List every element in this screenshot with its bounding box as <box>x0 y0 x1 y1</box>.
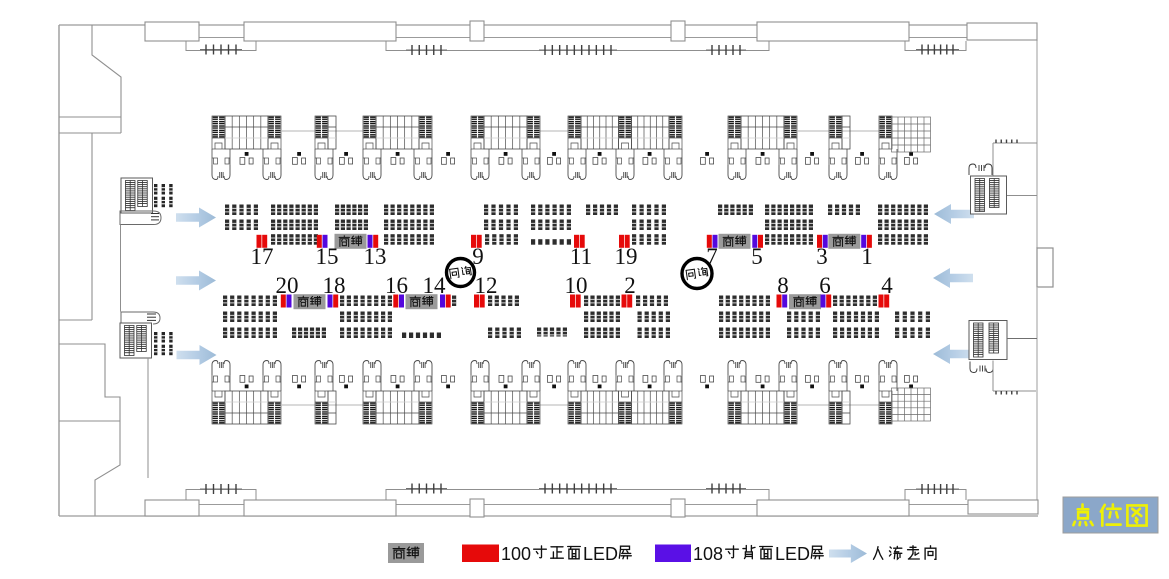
svg-text:14: 14 <box>423 273 447 298</box>
svg-text:3: 3 <box>816 244 828 269</box>
svg-text:17: 17 <box>251 244 274 269</box>
svg-text:6: 6 <box>819 273 831 298</box>
svg-text:16: 16 <box>385 273 408 298</box>
svg-text:15: 15 <box>316 244 339 269</box>
svg-text:12: 12 <box>475 273 498 298</box>
svg-text:10: 10 <box>565 273 588 298</box>
svg-text:20: 20 <box>276 273 299 298</box>
svg-text:5: 5 <box>751 244 763 269</box>
svg-text:11: 11 <box>570 244 592 269</box>
svg-text:18: 18 <box>323 273 346 298</box>
svg-text:108: 108 <box>693 544 723 564</box>
svg-text:LED: LED <box>775 544 810 564</box>
svg-text:19: 19 <box>615 244 638 269</box>
svg-text:13: 13 <box>364 244 387 269</box>
svg-text:8: 8 <box>777 273 789 298</box>
svg-text:2: 2 <box>624 273 636 298</box>
svg-text:1: 1 <box>861 244 873 269</box>
svg-text:4: 4 <box>881 273 893 298</box>
svg-text:100: 100 <box>501 544 531 564</box>
svg-text:LED: LED <box>583 544 618 564</box>
